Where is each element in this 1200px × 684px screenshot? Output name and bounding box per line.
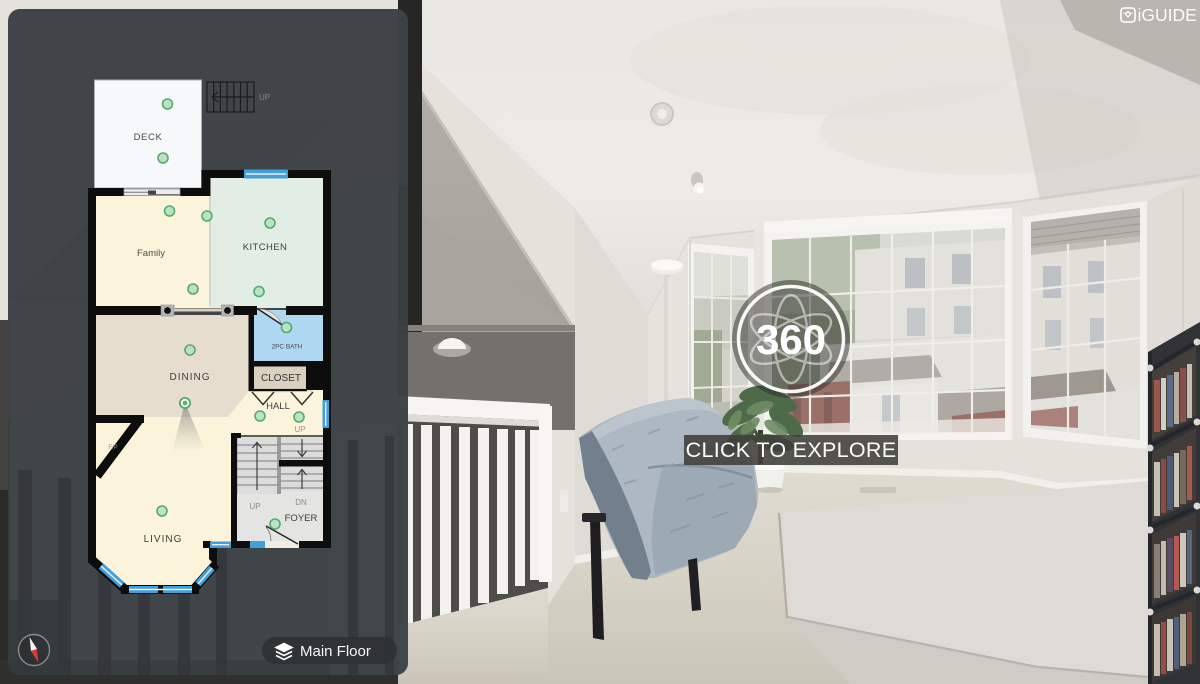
svg-text:DINING: DINING bbox=[170, 372, 211, 383]
svg-text:UP: UP bbox=[249, 502, 260, 511]
svg-text:DN: DN bbox=[295, 498, 307, 507]
svg-text:2PC BATH: 2PC BATH bbox=[272, 344, 303, 351]
svg-text:CLOSET: CLOSET bbox=[261, 373, 301, 384]
svg-text:iGUIDE: iGUIDE bbox=[1138, 5, 1197, 25]
svg-text:LIVING: LIVING bbox=[144, 534, 183, 545]
svg-text:Main Floor: Main Floor bbox=[300, 643, 371, 660]
svg-text:HALL: HALL bbox=[266, 401, 290, 412]
svg-text:CLICK TO EXPLORE: CLICK TO EXPLORE bbox=[686, 438, 897, 462]
svg-text:360: 360 bbox=[756, 316, 826, 363]
svg-text:UP: UP bbox=[259, 93, 270, 102]
svg-text:FOYER: FOYER bbox=[285, 513, 318, 524]
svg-text:UP: UP bbox=[294, 425, 305, 434]
svg-text:DECK: DECK bbox=[134, 132, 163, 143]
svg-text:KITCHEN: KITCHEN bbox=[243, 242, 288, 253]
svg-text:Family: Family bbox=[137, 248, 165, 259]
svg-text:F/P: F/P bbox=[108, 445, 117, 451]
